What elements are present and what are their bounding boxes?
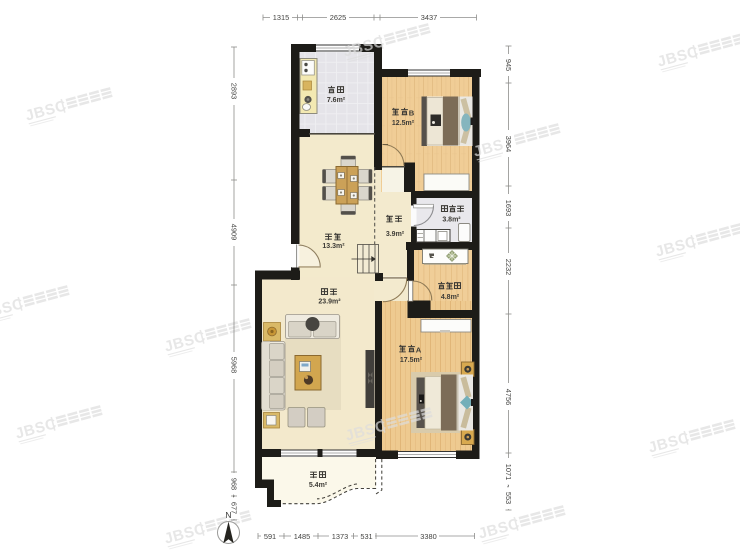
svg-text:~: ~	[504, 484, 510, 488]
svg-text:1693: 1693	[504, 200, 513, 216]
svg-text:5968: 5968	[230, 357, 239, 373]
svg-text:553: 553	[504, 492, 513, 504]
svg-text:17.5m²: 17.5m²	[400, 357, 423, 364]
svg-text:4756: 4756	[504, 389, 513, 405]
svg-text:531: 531	[360, 532, 372, 541]
svg-text:4.8m²: 4.8m²	[441, 294, 460, 301]
svg-text:945: 945	[504, 59, 513, 71]
svg-text:1485: 1485	[294, 532, 310, 541]
svg-text:591: 591	[264, 532, 276, 541]
svg-text:4909: 4909	[230, 224, 239, 240]
svg-text:3.8m²: 3.8m²	[442, 217, 461, 224]
svg-text:N: N	[225, 510, 231, 520]
svg-text:1071: 1071	[504, 464, 513, 480]
svg-text:12.5m²: 12.5m²	[392, 120, 415, 127]
svg-text:968: 968	[230, 478, 239, 490]
svg-text:A: A	[416, 346, 422, 355]
svg-text:3380: 3380	[420, 532, 436, 541]
svg-text:2893: 2893	[230, 83, 239, 99]
svg-text:2232: 2232	[504, 259, 513, 275]
svg-text:3437: 3437	[421, 13, 437, 22]
svg-text:B: B	[409, 109, 415, 118]
svg-text:5.4m²: 5.4m²	[309, 482, 328, 489]
svg-text:1315: 1315	[273, 13, 289, 22]
svg-text:3964: 3964	[504, 136, 513, 152]
svg-text:2625: 2625	[330, 13, 346, 22]
svg-text:7.6m²: 7.6m²	[327, 97, 346, 104]
svg-text:13.3m²: 13.3m²	[322, 243, 345, 250]
svg-text:23.9m²: 23.9m²	[318, 299, 341, 306]
svg-text:~: ~	[230, 494, 236, 498]
svg-text:1373: 1373	[332, 532, 348, 541]
svg-text:3.9m²: 3.9m²	[386, 231, 405, 238]
